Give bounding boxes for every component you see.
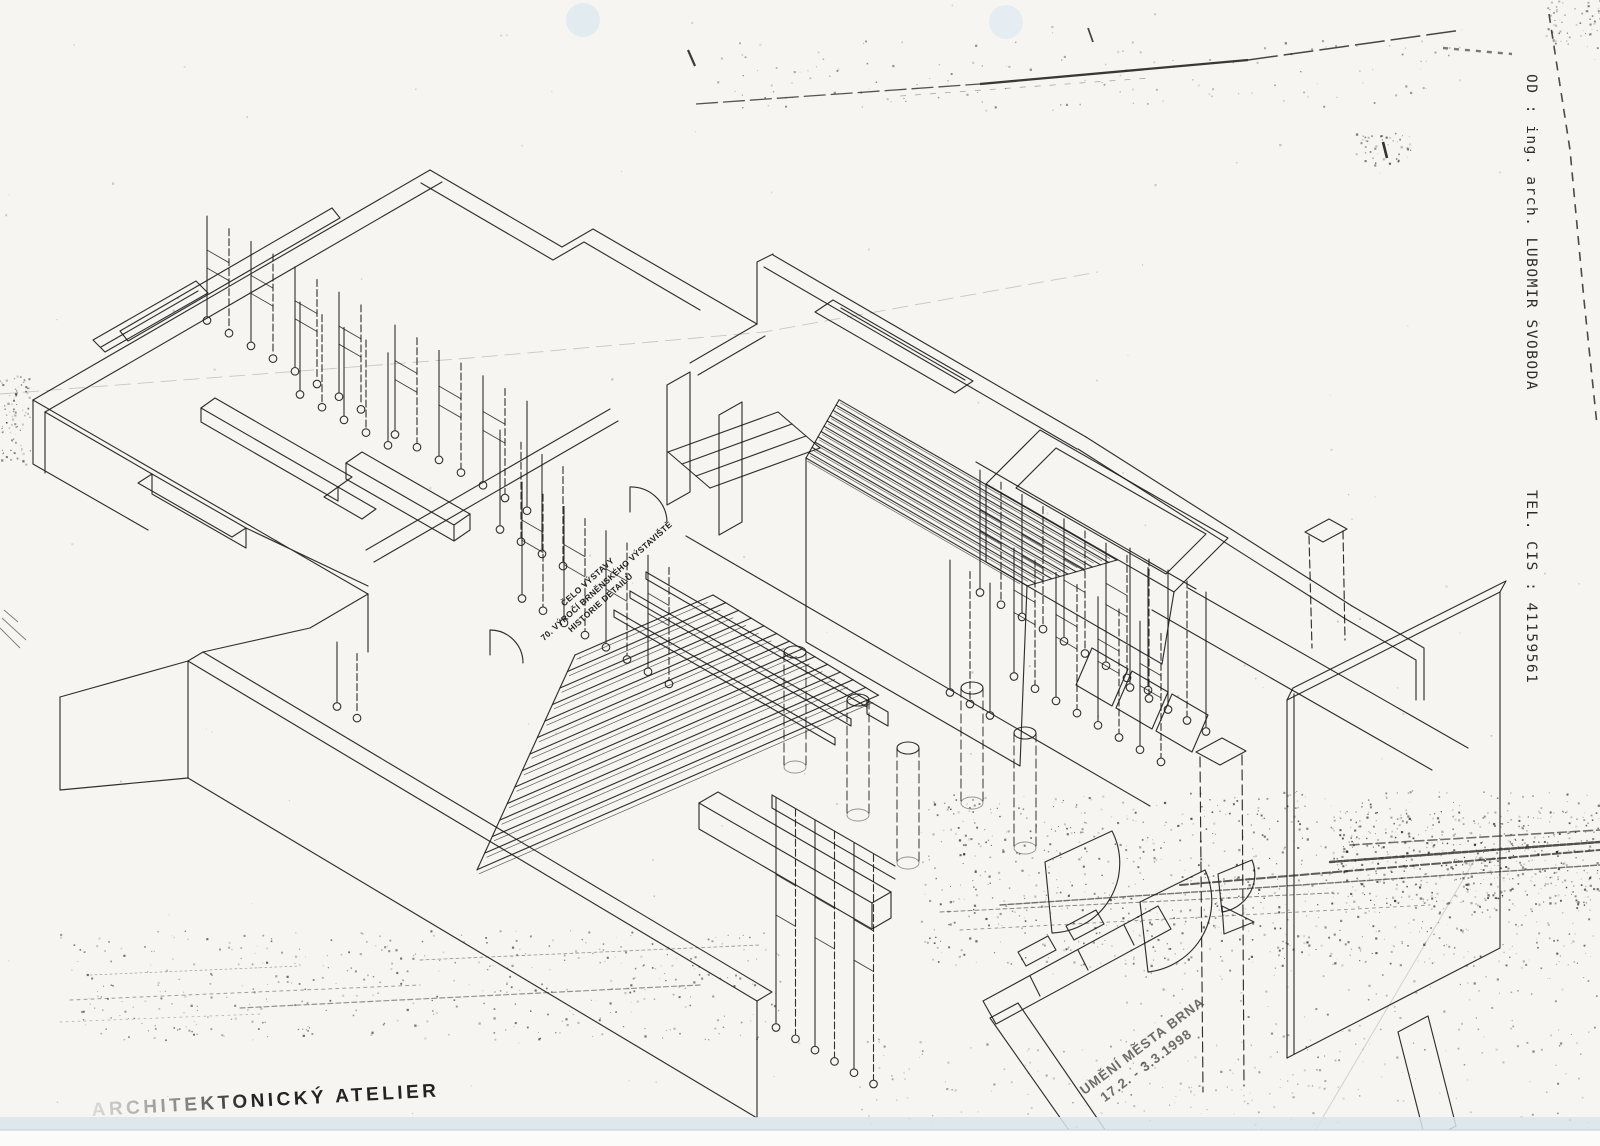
fax-tel-text: TEL. CIS : 41159561	[1523, 490, 1539, 684]
scanner-band-lower	[0, 1130, 1600, 1146]
scanner-light-band	[0, 1117, 1600, 1130]
scanned-fax-page: OD : ing. arch. LUBOMIR SVOBODA TEL. CIS…	[0, 0, 1600, 1146]
punch-hole-right	[989, 5, 1023, 39]
fax-sender-text: OD : ing. arch. LUBOMIR SVOBODA	[1523, 74, 1539, 391]
paper-background	[0, 0, 1600, 1146]
axonometric-drawing-scan: OD : ing. arch. LUBOMIR SVOBODA TEL. CIS…	[0, 0, 1600, 1146]
punch-hole-left	[566, 3, 600, 37]
